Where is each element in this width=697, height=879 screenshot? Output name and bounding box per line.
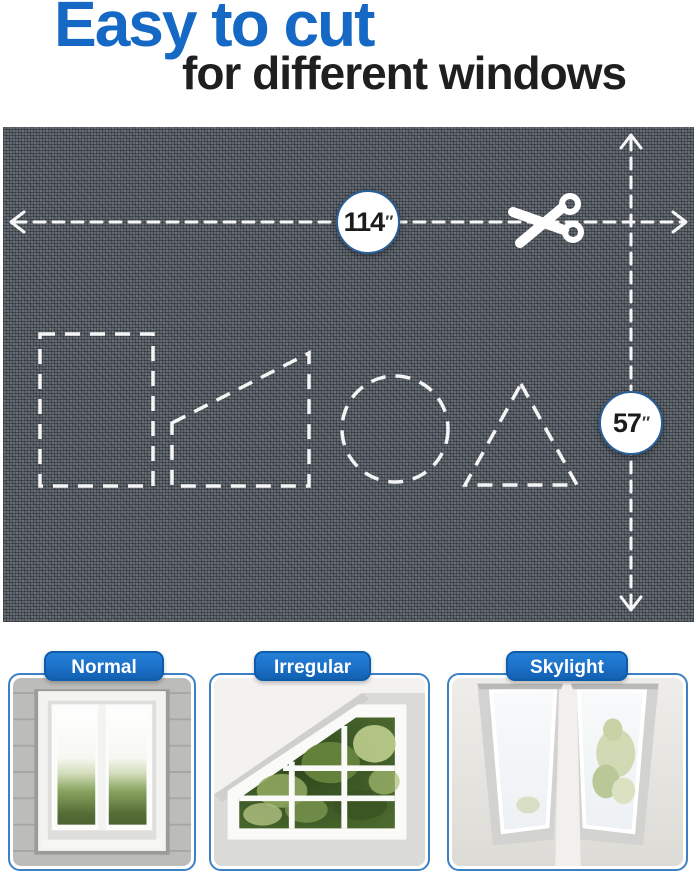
scissors-icon (513, 196, 581, 243)
irregular-window-photo (214, 678, 425, 866)
cut-shape-circle (342, 376, 448, 482)
width-measurement-badge: 114″ (336, 190, 400, 254)
badge-normal: Normal (44, 651, 164, 681)
height-arrow (621, 135, 641, 610)
badge-irregular: Irregular (254, 651, 371, 681)
skylight-window-photo (452, 678, 683, 866)
page-subtitle: for different windows (182, 50, 626, 96)
height-value: 57 (613, 408, 641, 439)
card-irregular-window (209, 673, 430, 871)
cut-shape-trapezoid (172, 353, 309, 486)
cut-shape-rectangle (40, 334, 153, 486)
normal-window-photo (13, 678, 191, 866)
mesh-fabric-panel: 114″ 57″ (3, 127, 694, 622)
width-value: 114 (344, 207, 385, 238)
height-measurement-badge: 57″ (599, 391, 663, 455)
cut-shape-triangle (465, 384, 577, 485)
card-skylight-window (447, 673, 688, 871)
badge-skylight: Skylight (506, 651, 628, 681)
card-normal-window (8, 673, 196, 871)
